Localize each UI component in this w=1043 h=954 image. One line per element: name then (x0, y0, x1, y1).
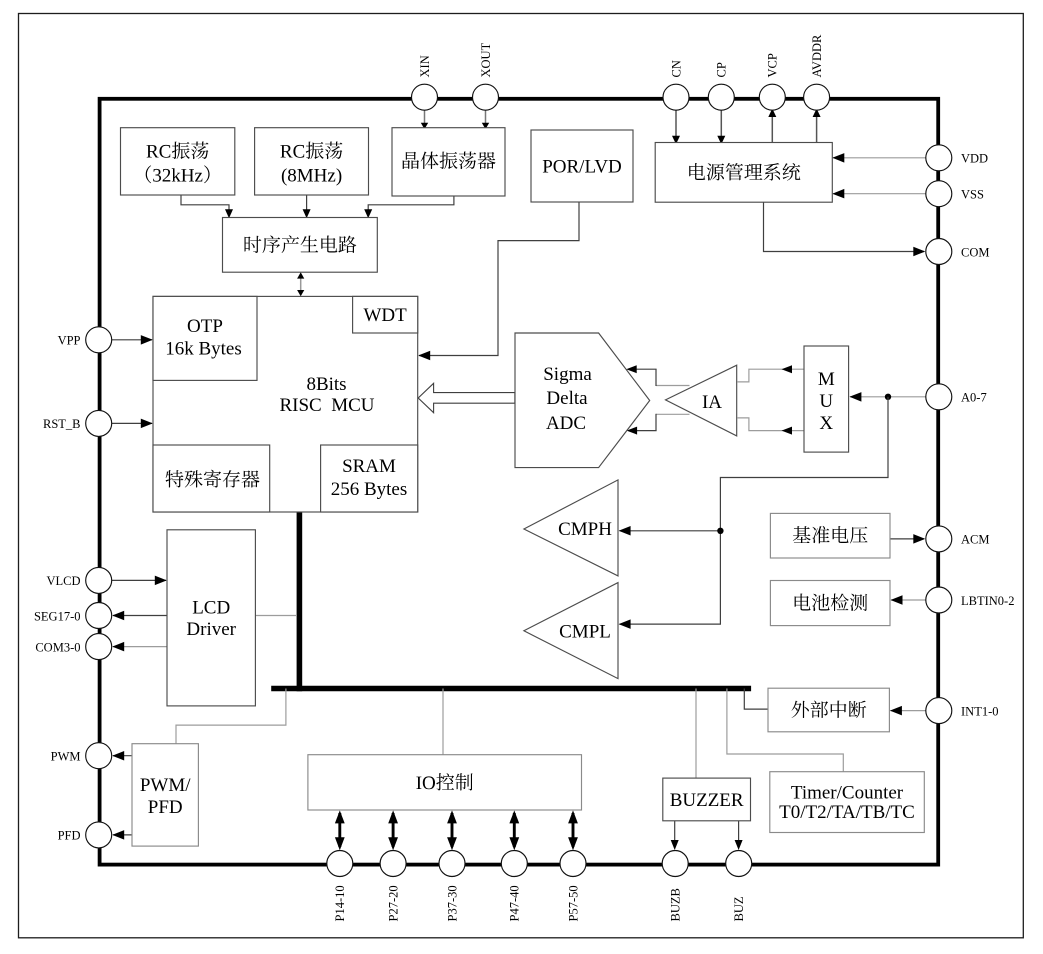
svg-text:X: X (819, 413, 833, 434)
svg-text:VCP: VCP (766, 53, 780, 77)
svg-text:PWM/: PWM/ (140, 775, 191, 796)
svg-text:ADC: ADC (546, 413, 586, 434)
svg-text:Driver: Driver (186, 619, 236, 640)
svg-text:RST_B: RST_B (43, 417, 81, 431)
svg-text:Delta: Delta (546, 388, 588, 409)
svg-text:T0/T2/TA/TB/TC: T0/T2/TA/TB/TC (779, 802, 915, 823)
svg-text:BUZB: BUZB (669, 888, 683, 921)
svg-text:CN: CN (669, 60, 683, 77)
svg-text:Timer/Counter: Timer/Counter (791, 783, 904, 804)
svg-text:IA: IA (702, 392, 722, 413)
svg-text:CP: CP (715, 62, 729, 77)
svg-text:P37-30: P37-30 (445, 885, 459, 921)
svg-text:BUZ: BUZ (732, 897, 746, 922)
svg-text:VLCD: VLCD (46, 574, 80, 588)
svg-text:LBTIN0-2: LBTIN0-2 (961, 594, 1014, 608)
svg-text:16k Bytes: 16k Bytes (165, 339, 242, 360)
svg-text:COM: COM (961, 245, 989, 259)
svg-text:VDD: VDD (961, 152, 988, 166)
svg-text:(8MHz): (8MHz) (281, 166, 342, 187)
svg-text:A0-7: A0-7 (961, 391, 987, 405)
svg-text:VPP: VPP (58, 334, 81, 348)
svg-text:WDT: WDT (363, 305, 407, 326)
svg-text:CMPH: CMPH (558, 519, 612, 540)
svg-text:LCD: LCD (192, 598, 230, 619)
svg-text:POR/LVD: POR/LVD (542, 157, 622, 178)
svg-text:INT1-0: INT1-0 (961, 704, 999, 718)
svg-text:XIN: XIN (418, 55, 432, 77)
svg-text:SRAM: SRAM (342, 456, 396, 477)
svg-text:BUZZER: BUZZER (670, 790, 744, 811)
svg-text:SEG17-0: SEG17-0 (34, 609, 81, 623)
svg-text:M: M (818, 369, 835, 390)
svg-text:CMPL: CMPL (559, 622, 611, 643)
svg-text:P14-10: P14-10 (333, 885, 347, 921)
svg-text:8Bits: 8Bits (306, 374, 346, 395)
svg-text:P57-50: P57-50 (566, 885, 580, 921)
svg-text:Sigma: Sigma (543, 364, 592, 385)
svg-text:U: U (819, 391, 833, 412)
svg-text:P27-20: P27-20 (386, 885, 400, 921)
svg-text:ACM: ACM (961, 533, 989, 547)
svg-text:PFD: PFD (58, 829, 81, 843)
svg-text:XOUT: XOUT (479, 42, 493, 77)
svg-text:OTP: OTP (187, 316, 223, 337)
svg-text:P47-40: P47-40 (508, 885, 522, 921)
svg-text:256 Bytes: 256 Bytes (331, 479, 408, 500)
svg-text:RISC MCU: RISC MCU (279, 395, 374, 416)
svg-text:PWM: PWM (51, 750, 81, 764)
svg-text:PFD: PFD (148, 797, 183, 818)
svg-text:VSS: VSS (961, 188, 984, 202)
svg-text:AVDDR: AVDDR (810, 34, 824, 77)
svg-text:COM3-0: COM3-0 (35, 640, 80, 654)
